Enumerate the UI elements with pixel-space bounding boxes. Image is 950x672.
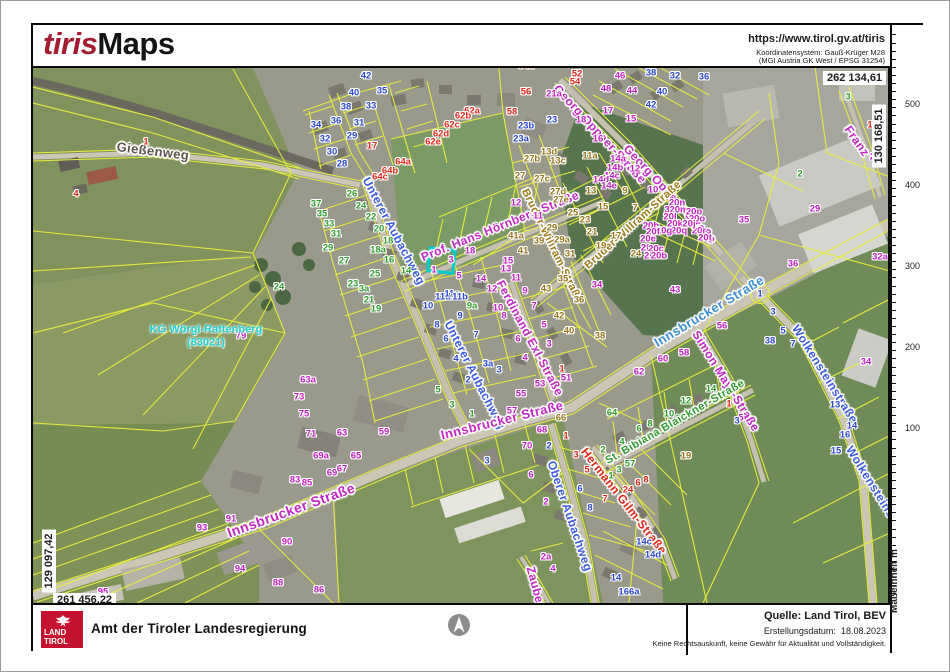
parcel-number-label: 34: [311, 120, 322, 131]
parcel-number-label: 42: [554, 311, 565, 322]
parcel-number-label: 166a: [618, 587, 639, 598]
parcel-number-label: 20t: [698, 233, 712, 244]
cadastral-community-label: KG Wörgl-Rattenberg (83021): [150, 323, 262, 348]
parcel-number-label: 5: [456, 271, 461, 282]
parcel-number-label: 24: [623, 485, 634, 496]
parcel-number-label: 75: [299, 409, 310, 420]
parcel-number-label: 16: [593, 134, 604, 145]
parcel-number-label: 64: [607, 408, 618, 419]
parcel-number-label: 3a: [359, 284, 370, 295]
parcel-number-label: 36: [699, 72, 710, 83]
parcel-number-label: 54: [570, 77, 581, 88]
parcel-number-label: 4: [550, 564, 555, 575]
parcel-number-label: 30: [327, 147, 338, 158]
parcel-number-label: 68: [537, 425, 548, 436]
scale-tick-label: 400: [905, 180, 920, 190]
parcel-number-label: 2: [797, 169, 802, 180]
parcel-number-label: 88: [273, 578, 284, 589]
scale-tick-label: 500: [905, 99, 920, 109]
parcel-number-label: 9: [622, 186, 627, 197]
parcel-number-label: 73: [294, 392, 305, 403]
parcel-number-label: 9a: [467, 301, 478, 312]
tiris-maps-logo: tirisMaps: [43, 26, 175, 62]
parcel-number-label: 3a: [483, 359, 494, 370]
parcel-number-label: 24: [274, 282, 285, 293]
tiris-maps-print-page: tirisMaps https://www.tirol.gv.at/tiris …: [0, 0, 950, 672]
scale-ruler: 500400300200100 Maßeinheit m: [890, 25, 925, 653]
parcel-number-label: 4: [73, 189, 78, 200]
parcel-number-label: 14: [706, 384, 717, 395]
parcel-number-label: 67: [337, 464, 348, 475]
parcel-number-label: 19: [681, 451, 692, 462]
parcel-number-label: 5: [541, 320, 546, 331]
parcel-number-label: 4: [522, 353, 527, 364]
parcel-number-label: 15: [831, 446, 842, 457]
parcel-number-label: 20: [374, 224, 385, 235]
parcel-number-label: 7: [632, 203, 637, 214]
tiris-url: https://www.tirol.gv.at/tiris: [748, 33, 885, 45]
parcel-number-label: 1: [726, 399, 731, 410]
parcel-number-label: 58: [507, 107, 518, 118]
parcel-number-label: 34: [861, 357, 872, 368]
parcel-number-label: 22: [366, 212, 377, 223]
parcel-number-label: 62: [634, 367, 645, 378]
parcel-number-label: 3: [845, 92, 850, 103]
parcel-number-label: 14d: [645, 550, 661, 561]
parcel-number-label: 38: [341, 102, 352, 113]
parcel-number-label: 63: [337, 428, 348, 439]
parcel-number-label: 26: [347, 189, 358, 200]
parcel-number-label: 2: [465, 375, 470, 386]
parcel-number-label: 66: [556, 413, 567, 424]
parcel-number-label: 29a: [554, 235, 570, 246]
parcel-number-label: 38: [646, 68, 657, 79]
logo-tiris: tiris: [43, 26, 97, 61]
parcel-number-label: 6: [636, 424, 641, 435]
parcel-number-label: 3: [770, 307, 775, 318]
parcel-number-label: 43: [541, 284, 552, 295]
footer: LAND TIROL Amt der Tiroler Landesregieru…: [33, 603, 890, 653]
parcel-number-label: 54a: [518, 68, 534, 72]
parcel-number-label: 32: [320, 134, 331, 145]
parcel-number-label: 35: [558, 274, 569, 285]
parcel-number-label: 33: [366, 101, 377, 112]
parcel-number-label: 10: [423, 301, 434, 312]
parcel-number-label: 3: [734, 416, 739, 427]
header: tirisMaps https://www.tirol.gv.at/tiris …: [33, 25, 890, 68]
land-tirol-logo: LAND TIROL: [41, 611, 83, 648]
parcel-number-label: 29: [810, 204, 821, 215]
parcel-number-label: 57: [625, 459, 636, 470]
parcel-number-label: 27b: [524, 154, 540, 165]
parcel-number-label: 42: [361, 71, 372, 82]
parcel-number-label: 27c: [534, 174, 550, 185]
corner-coordinate-bottom-left-northing: 129 097,42: [42, 529, 56, 592]
parcel-number-label: 32a: [872, 252, 888, 263]
parcel-number-label: 4: [619, 437, 624, 448]
parcel-number-label: 23a: [513, 134, 529, 145]
parcel-number-label: 27e: [553, 195, 569, 206]
parcel-number-label: 1: [608, 471, 613, 482]
parcel-number-label: 12: [511, 198, 522, 209]
parcel-number-label: 31: [565, 249, 576, 260]
parcel-number-label: 9: [457, 311, 462, 322]
parcel-number-label: 46: [615, 71, 626, 82]
parcel-number-label: 3: [448, 255, 453, 266]
parcel-number-label: 1: [469, 409, 474, 420]
parcel-number-label: 3: [546, 339, 551, 350]
parcel-number-label: 31: [331, 229, 342, 240]
parcel-number-label: 86: [314, 585, 325, 596]
parcel-number-label: 69: [327, 468, 338, 479]
parcel-number-label: 5: [435, 385, 440, 396]
parcel-number-label: 7: [602, 494, 607, 505]
parcel-number-label: 40: [564, 326, 575, 337]
parcel-number-label: 3: [496, 365, 501, 376]
scale-unit-label: Maßeinheit m: [889, 549, 900, 613]
parcel-number-label: 56: [521, 87, 532, 98]
parcel-number-label: 7: [531, 301, 536, 312]
parcel-number-label: 83: [290, 475, 301, 486]
parcel-number-label: 23: [547, 115, 558, 126]
parcel-number-label: 8: [643, 475, 648, 486]
parcel-number-label: 94: [235, 564, 246, 575]
tirol-eagle-icon: [53, 613, 73, 629]
parcel-number-label: 7: [473, 330, 478, 341]
parcel-number-label: 18: [465, 246, 476, 257]
parcel-number-label: 1: [431, 265, 436, 276]
parcel-number-label: 11a: [582, 151, 597, 162]
parcel-number-label: 8: [647, 419, 652, 430]
parcel-number-label: 90: [282, 537, 293, 548]
parcel-number-label: 19: [371, 304, 382, 315]
parcel-number-label: 6: [528, 470, 533, 481]
parcel-number-label: 17: [603, 106, 614, 117]
parcel-number-label: 14e: [601, 181, 617, 192]
parcel-number-label: 23b: [518, 121, 534, 132]
parcel-number-label: 6: [515, 334, 520, 345]
parcel-number-label: 32: [670, 71, 681, 82]
parcel-number-label: 1: [563, 431, 568, 442]
parcel-number-label: 13: [501, 264, 512, 275]
parcel-number-label: 1: [559, 364, 564, 375]
parcel-number-label: 11: [533, 211, 543, 222]
parcel-number-label: 40: [657, 87, 668, 98]
scale-tick-label: 300: [905, 261, 920, 271]
parcel-number-label: 8: [501, 311, 506, 322]
parcel-number-label: 14: [611, 573, 622, 584]
corner-coordinate-top-right-easting: 262 134,61: [823, 71, 886, 85]
creation-date: Erstellungsdatum: 18.08.2023: [764, 626, 886, 636]
parcel-number-label: 2: [543, 497, 548, 508]
parcel-number-label: 1: [757, 289, 762, 300]
scale-tick-label: 200: [905, 342, 920, 352]
parcel-number-label: 25: [568, 208, 579, 219]
parcel-number-label: 8: [434, 320, 439, 331]
parcel-number-label: 9: [522, 286, 527, 297]
parcel-number-label: 12: [681, 396, 692, 407]
parcel-number-label: 3: [484, 456, 489, 467]
parcel-number-label: 69a: [313, 451, 329, 462]
parcel-number-label: 29: [323, 243, 334, 254]
parcel-number-label: 53: [535, 379, 546, 390]
source-box: Quelle: Land Tirol, BEV Erstellungsdatum…: [686, 605, 890, 655]
corner-coordinate-bottom-left-easting: 261 456,22: [53, 593, 116, 603]
parcel-number-label: 21a: [546, 89, 562, 100]
parcel-number-label: 6: [635, 478, 640, 489]
parcel-number-label: 15: [626, 114, 637, 125]
parcel-number-label: 38: [595, 331, 606, 342]
parcel-number-label: 14: [476, 274, 487, 285]
parcel-number-label: 14: [401, 266, 412, 277]
parcel-number-label: 25: [370, 269, 381, 280]
parcel-number-label: 55: [516, 389, 527, 400]
parcel-number-label: 44: [627, 86, 638, 97]
parcel-number-label: 12: [630, 164, 641, 175]
agency-name: Amt der Tiroler Landesregierung: [91, 621, 307, 636]
parcel-number-label: 20j: [682, 219, 695, 230]
parcel-number-label: 34: [592, 280, 603, 291]
parcel-number-label: 62e: [425, 137, 441, 148]
parcel-number-label: 13: [586, 186, 597, 197]
parcel-number-label: 14c: [636, 537, 652, 548]
parcel-number-label: 70: [522, 441, 533, 452]
parcel-number-label: 7: [790, 339, 795, 350]
parcel-number-label: 63a: [300, 375, 316, 386]
parcel-number-label: 41: [518, 246, 529, 257]
parcel-number-label: 48: [601, 84, 612, 95]
corner-coordinate-top-right-northing: 130 168,51: [872, 104, 886, 167]
parcel-number-label: 91: [226, 514, 237, 525]
parcel-number-label: 27: [515, 171, 526, 182]
parcel-number-label: 10: [664, 409, 675, 420]
parcel-number-label: 36: [788, 259, 799, 270]
parcel-number-label: 24: [631, 249, 642, 260]
parcel-number-label: 17: [611, 231, 622, 242]
parcel-number-label: 58: [679, 348, 690, 359]
parcel-number-label: 16: [840, 430, 851, 441]
parcel-number-label: 6: [577, 484, 582, 495]
parcel-number-label: 23: [580, 215, 591, 226]
parcel-number-label: 11: [511, 273, 521, 284]
parcel-number-label: 12: [487, 284, 498, 295]
map-sheet-frame: tirisMaps https://www.tirol.gv.at/tiris …: [31, 23, 923, 651]
parcel-number-label: 4: [453, 354, 458, 365]
parcel-number-label: 59: [379, 427, 390, 438]
parcel-number-label: 40: [349, 88, 360, 99]
parcel-number-label: 36: [574, 295, 585, 306]
parcel-number-label: 3: [449, 400, 454, 411]
parcel-number-label: 1: [143, 137, 148, 148]
scale-tick-label: 100: [905, 423, 920, 433]
parcel-number-label: 16: [384, 255, 395, 266]
parcel-number-label: 20b: [651, 251, 667, 262]
parcel-number-label: 8: [587, 503, 592, 514]
parcel-number-label: 71: [306, 429, 317, 440]
parcel-number-label: 23: [348, 279, 359, 290]
parcel-number-label: 3: [573, 450, 578, 461]
parcel-number-label: 2: [546, 441, 551, 452]
parcel-number-label: 60: [658, 354, 669, 365]
parcel-number-label: 29: [347, 131, 358, 142]
parcel-number-label: 39: [534, 236, 545, 247]
parcel-number-label: 41a: [508, 231, 524, 242]
parcel-number-label: 42: [646, 100, 657, 111]
parcel-number-label: 15: [598, 202, 609, 213]
parcel-number-label: 18: [576, 115, 587, 126]
parcel-number-label: 2: [600, 445, 605, 456]
source-text: Quelle: Land Tirol, BEV: [764, 610, 886, 622]
parcel-number-label: 19: [596, 241, 607, 252]
map-canvas: GießenwegUnterer AubachwegUnterer Aubach…: [33, 68, 890, 603]
disclaimer-text: Keine Rechtsauskunft, keine Gewähr für A…: [653, 639, 886, 648]
parcel-number-label: 24: [356, 201, 367, 212]
parcel-number-label: 35: [377, 86, 388, 97]
north-arrow-icon: [447, 613, 471, 637]
parcel-number-label: 38: [765, 336, 776, 347]
parcel-number-label: 13: [830, 400, 841, 411]
parcel-number-label: 65: [351, 451, 362, 462]
parcel-number-label: 35: [739, 215, 750, 226]
parcel-number-label: 85: [302, 478, 313, 489]
parcel-number-label: 21: [587, 227, 598, 238]
coordinate-system-line2: (MGI Austria GK West / EPSG 31254): [759, 56, 885, 65]
parcel-number-label: 31: [354, 118, 365, 129]
parcel-number-label: 2a: [541, 552, 552, 563]
parcel-number-label: 29: [547, 223, 558, 234]
parcel-number-label: 17: [367, 141, 378, 152]
parcel-number-label: 56: [717, 321, 728, 332]
parcel-number-label: 11b: [452, 292, 468, 303]
parcel-number-label: 3: [616, 465, 621, 476]
parcel-number-label: 57: [507, 406, 518, 417]
parcel-number-label: 93: [197, 523, 208, 534]
parcel-number-label: 13c: [550, 156, 566, 167]
parcel-number-label: 43: [670, 285, 681, 296]
parcel-number-label: 6: [443, 334, 448, 345]
parcel-number-label: 36: [331, 116, 342, 127]
parcel-number-label: 27: [339, 256, 350, 267]
parcel-number-label: 5: [780, 326, 785, 337]
parcel-number-label: 28: [337, 159, 348, 170]
logo-maps: Maps: [97, 26, 174, 61]
parcel-number-label: 5: [584, 465, 589, 476]
parcel-number-label: 10: [648, 185, 659, 196]
parcel-number-label: 64c: [372, 172, 388, 183]
